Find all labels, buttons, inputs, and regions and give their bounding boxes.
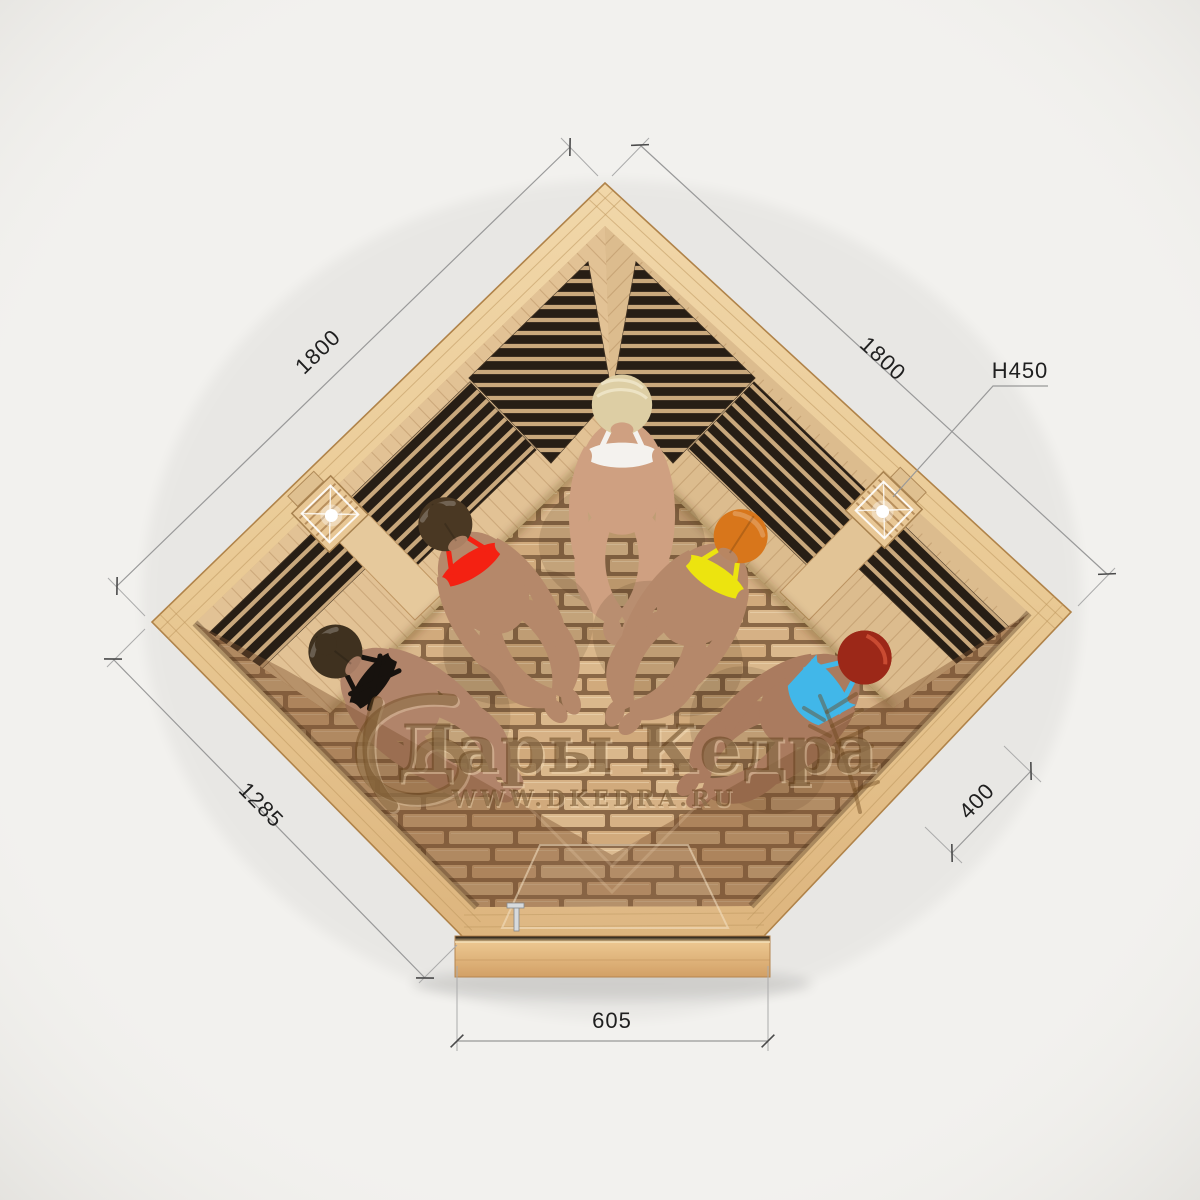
dim-label-door: 605 [592,1008,632,1033]
glass-door-frame [502,845,728,928]
sauna-topview-render: Дары Кедра Дары Кедра WWW.DKEDRA.RU WWW.… [0,0,1200,1200]
watermark-url: WWW.DKEDRA.RU [451,786,737,812]
scene-canvas: Дары Кедра Дары Кедра WWW.DKEDRA.RU WWW.… [0,0,1200,1200]
dim-label-height: H450 [992,358,1049,383]
base-plinth [455,936,770,977]
watermark-brand: Дары Кедра [396,710,878,788]
